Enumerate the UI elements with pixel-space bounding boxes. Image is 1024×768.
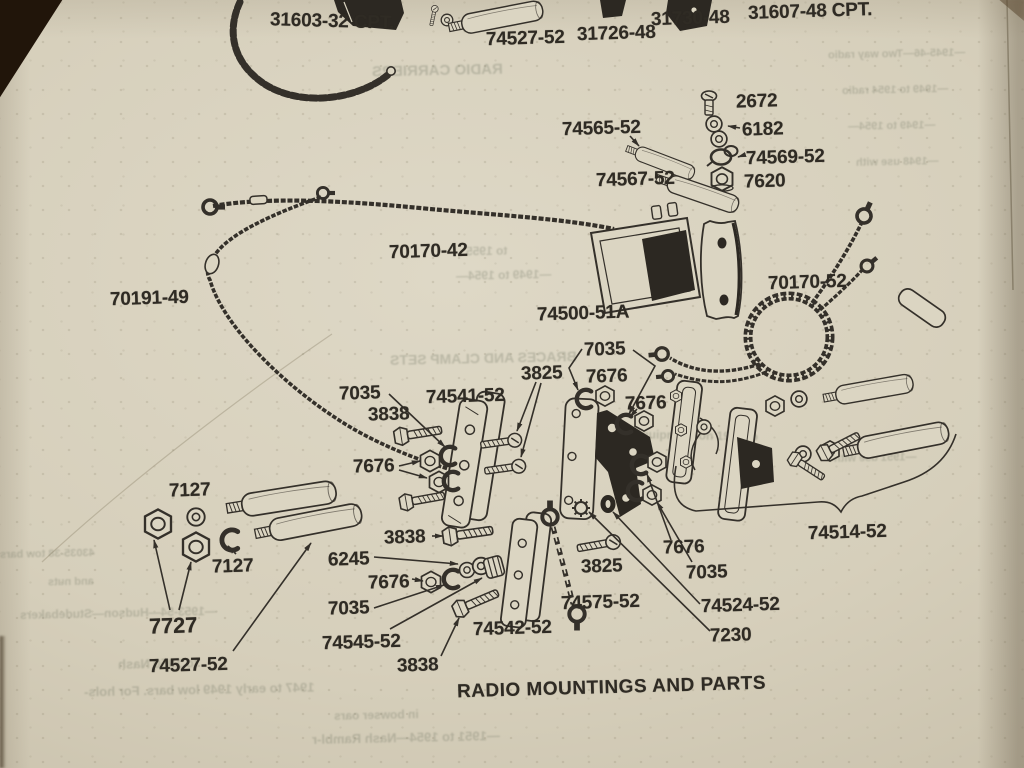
part-number-label: 7230 bbox=[710, 624, 752, 647]
part-number-label: 7676 bbox=[663, 536, 705, 559]
part-number-label: 7727 bbox=[149, 612, 198, 639]
part-number-label: 3825 bbox=[521, 362, 563, 385]
screw-2672 bbox=[702, 91, 717, 115]
part-number-label: 74545-52 bbox=[322, 631, 401, 655]
part-number-label: 3825 bbox=[581, 555, 623, 578]
page-edge bbox=[1007, 0, 1013, 290]
part-number-label: 7676 bbox=[368, 571, 410, 594]
part-number-label: 7127 bbox=[212, 555, 254, 578]
part-number-label: 3838 bbox=[397, 654, 439, 677]
grommet-74524 bbox=[601, 495, 616, 513]
part-number-label: 74527-52 bbox=[486, 27, 565, 51]
part-number-label: 7620 bbox=[744, 170, 786, 193]
part-number-label: 74500-51A bbox=[537, 302, 630, 327]
part-number-label: 3838 bbox=[368, 403, 410, 426]
washer-stack-6245 bbox=[422, 555, 506, 593]
part-number-label: 7035 bbox=[686, 561, 728, 584]
part-number-label: 70170-42 bbox=[389, 240, 468, 264]
spacer-rod bbox=[822, 373, 914, 407]
mounting-bracket-74541 bbox=[441, 388, 506, 531]
part-number-label: 6182 bbox=[742, 118, 784, 141]
part-number-label: 31607-48 CPT. bbox=[748, 0, 873, 25]
part-number-label: 74514-52 bbox=[808, 521, 887, 545]
part-number-label: 70191-49 bbox=[110, 287, 189, 311]
part-number-label: 7035 bbox=[339, 382, 381, 405]
part-number-label: 31603-32 CPT. bbox=[270, 9, 395, 34]
part-number-label: 70170-52 bbox=[768, 271, 847, 295]
part-number-label: 7127 bbox=[169, 479, 211, 502]
part-number-label: 74524-52 bbox=[701, 594, 780, 618]
part-number-label: 31730-48 bbox=[651, 7, 730, 31]
part-number-label: 31726-48 bbox=[577, 22, 656, 46]
part-number-label: 74565-52 bbox=[562, 117, 641, 141]
part-number-label: 7035 bbox=[584, 338, 626, 361]
nut-7620 bbox=[711, 167, 733, 191]
part-number-label: 74567-52 bbox=[596, 168, 675, 192]
support-bracket-pair-74514 bbox=[666, 380, 863, 521]
part-number-label: 74575-52 bbox=[561, 591, 640, 615]
part-number-label: 7035 bbox=[328, 597, 370, 620]
part-number-label: 3838 bbox=[384, 526, 426, 549]
part-number-label: 7676 bbox=[353, 455, 395, 478]
part-number-label: 7676 bbox=[586, 365, 628, 388]
part-number-label: 74541-52 bbox=[426, 385, 505, 409]
part-number-label: 2672 bbox=[736, 90, 778, 113]
clamp-74569 bbox=[707, 146, 738, 166]
part-number-label: 74527-52 bbox=[149, 654, 228, 678]
part-number-label: 7676 bbox=[625, 392, 667, 415]
part-number-label: 74542-52 bbox=[473, 617, 552, 641]
part-number-label: 6245 bbox=[328, 548, 370, 571]
spacer-rod bbox=[841, 421, 950, 463]
photo-edge-shadow bbox=[0, 636, 6, 768]
catalog-page-photo: RADIO CARRIERS —1945-46—Two way radio —1… bbox=[0, 0, 1024, 768]
mounting-bracket-74542 bbox=[500, 510, 552, 630]
part-number-label: 74569-52 bbox=[746, 146, 825, 170]
exploded-parts-line-art bbox=[0, 0, 1024, 768]
antenna-lead-70170-42 bbox=[203, 195, 614, 229]
washers-6182 bbox=[706, 116, 727, 147]
